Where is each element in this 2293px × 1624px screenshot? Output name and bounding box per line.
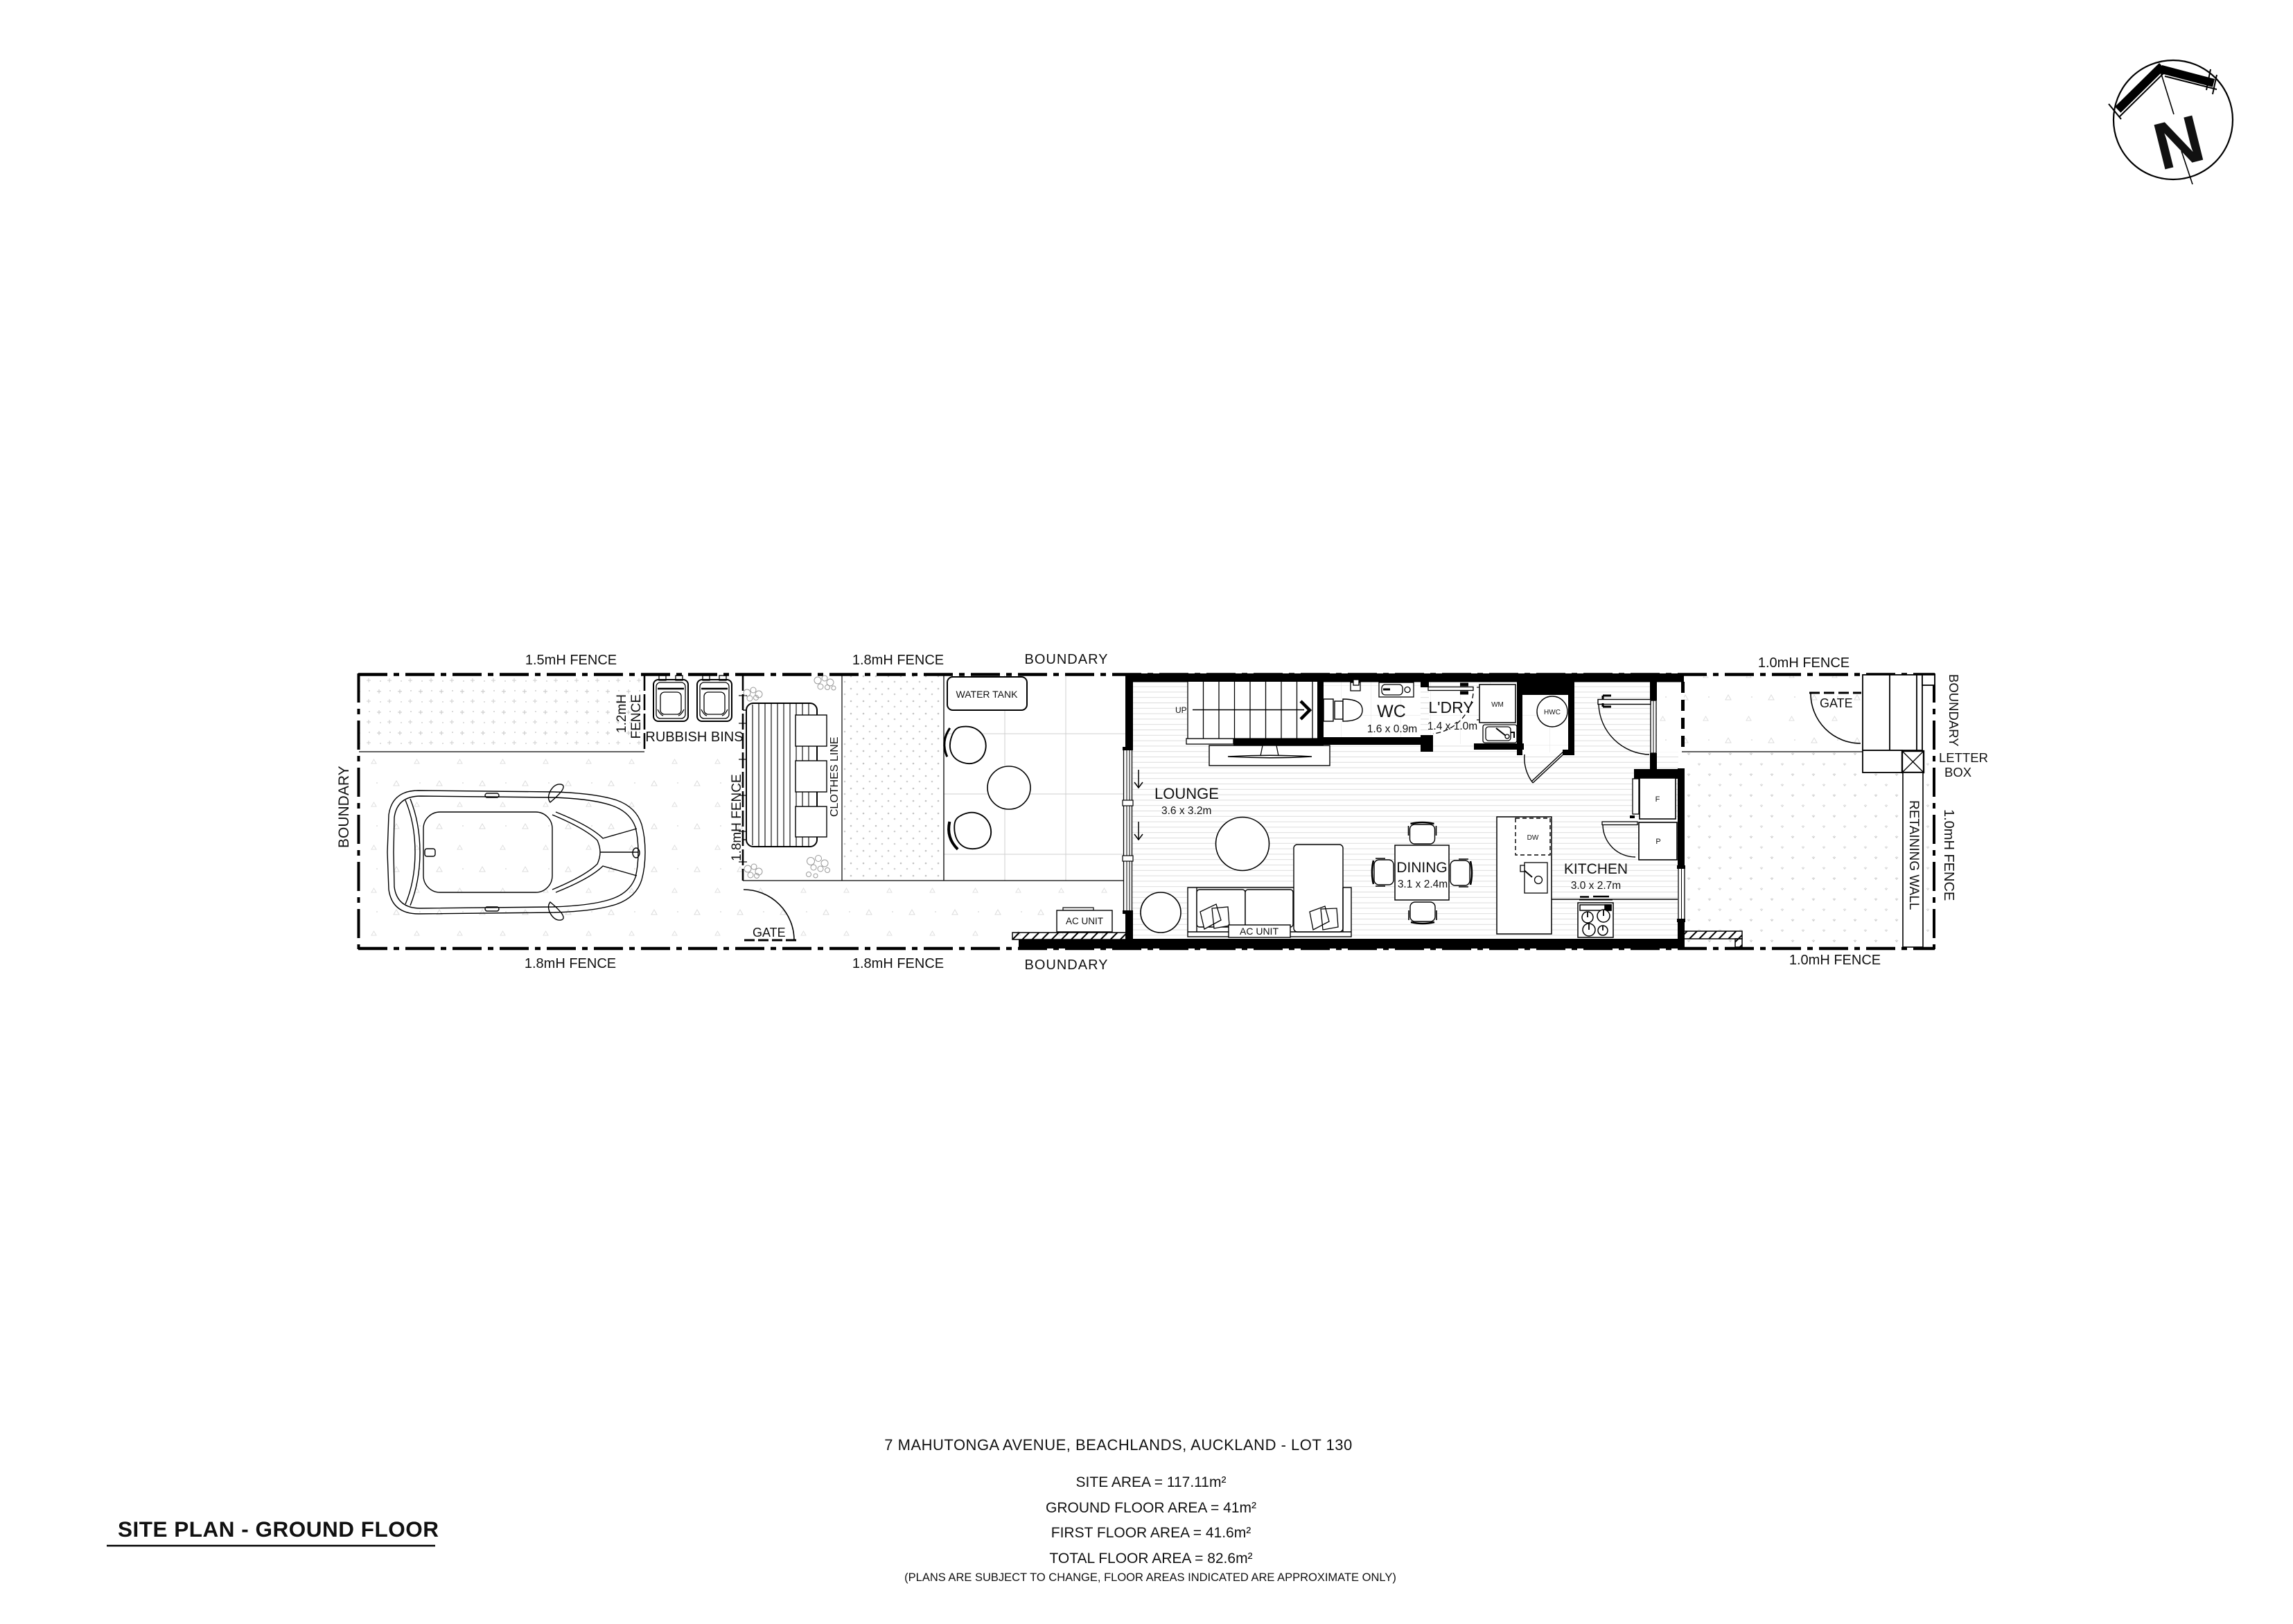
svg-text:FENCE: FENCE [629, 694, 644, 739]
svg-text:1.4 x 1.0m: 1.4 x 1.0m [1427, 721, 1477, 732]
svg-text:3.6 x 3.2m: 3.6 x 3.2m [1161, 805, 1211, 817]
svg-text:BOUNDARY: BOUNDARY [1025, 957, 1109, 973]
svg-text:WM: WM [1491, 701, 1504, 709]
svg-text:BOUNDARY: BOUNDARY [1947, 674, 1961, 747]
svg-text:1.5mH FENCE: 1.5mH FENCE [525, 653, 617, 668]
svg-text:BOUNDARY: BOUNDARY [1025, 652, 1109, 667]
svg-text:BOX: BOX [1944, 765, 1971, 779]
svg-text:SITE PLAN - GROUND FLOOR: SITE PLAN - GROUND FLOOR [118, 1517, 439, 1542]
svg-text:GATE: GATE [1820, 696, 1853, 710]
svg-text:7 MAHUTONGA AVENUE, BEACHLANDS: 7 MAHUTONGA AVENUE, BEACHLANDS, AUCKLAND… [884, 1436, 1352, 1454]
svg-text:GROUND FLOOR AREA = 41m²: GROUND FLOOR AREA = 41m² [1046, 1500, 1256, 1516]
svg-text:RETAINING WALL: RETAINING WALL [1906, 800, 1921, 910]
svg-text:RUBBISH BINS: RUBBISH BINS [645, 730, 743, 745]
svg-text:DINING: DINING [1396, 860, 1448, 876]
svg-text:1.2mH: 1.2mH [615, 694, 629, 733]
svg-text:SITE AREA = 117.11m²: SITE AREA = 117.11m² [1076, 1474, 1227, 1490]
svg-text:TOTAL FLOOR AREA = 82.6m²: TOTAL FLOOR AREA = 82.6m² [1049, 1551, 1252, 1566]
svg-text:3.1 x 2.4m: 3.1 x 2.4m [1398, 879, 1448, 890]
svg-text:L'DRY: L'DRY [1428, 698, 1473, 716]
svg-text:WC: WC [1377, 702, 1406, 721]
svg-text:DW: DW [1527, 834, 1539, 842]
svg-text:GATE: GATE [753, 926, 786, 939]
svg-text:1.0mH FENCE: 1.0mH FENCE [1758, 655, 1850, 671]
svg-text:1.0mH FENCE: 1.0mH FENCE [1941, 809, 1956, 901]
svg-text:LOUNGE: LOUNGE [1154, 785, 1219, 802]
svg-text:WATER TANK: WATER TANK [956, 689, 1019, 700]
svg-text:LETTER: LETTER [1939, 750, 1988, 765]
svg-text:FIRST FLOOR AREA = 41.6m²: FIRST FLOOR AREA = 41.6m² [1051, 1525, 1251, 1541]
svg-text:CLOTHES LINE: CLOTHES LINE [829, 736, 841, 817]
svg-text:1.8mH FENCE: 1.8mH FENCE [525, 956, 616, 971]
svg-text:(PLANS ARE SUBJECT TO CHANGE,: (PLANS ARE SUBJECT TO CHANGE, FLOOR AREA… [904, 1571, 1396, 1584]
svg-text:1.6 x 0.9m: 1.6 x 0.9m [1367, 723, 1417, 735]
svg-text:UP: UP [1175, 705, 1187, 715]
svg-text:F: F [1655, 795, 1660, 804]
svg-text:1.8mH FENCE: 1.8mH FENCE [852, 956, 944, 971]
svg-text:3.0 x 2.7m: 3.0 x 2.7m [1571, 880, 1621, 892]
svg-text:AC UNIT: AC UNIT [1066, 916, 1103, 926]
svg-text:KITCHEN: KITCHEN [1564, 861, 1628, 877]
svg-text:AC UNIT: AC UNIT [1240, 926, 1279, 937]
svg-text:1.0mH FENCE: 1.0mH FENCE [1789, 953, 1881, 968]
svg-text:1.8mH FENCE: 1.8mH FENCE [852, 653, 944, 668]
svg-text:P: P [1655, 838, 1660, 846]
svg-text:1.8mH FENCE: 1.8mH FENCE [730, 774, 744, 861]
svg-text:BOUNDARY: BOUNDARY [336, 766, 352, 848]
svg-text:HWC: HWC [1544, 709, 1561, 716]
